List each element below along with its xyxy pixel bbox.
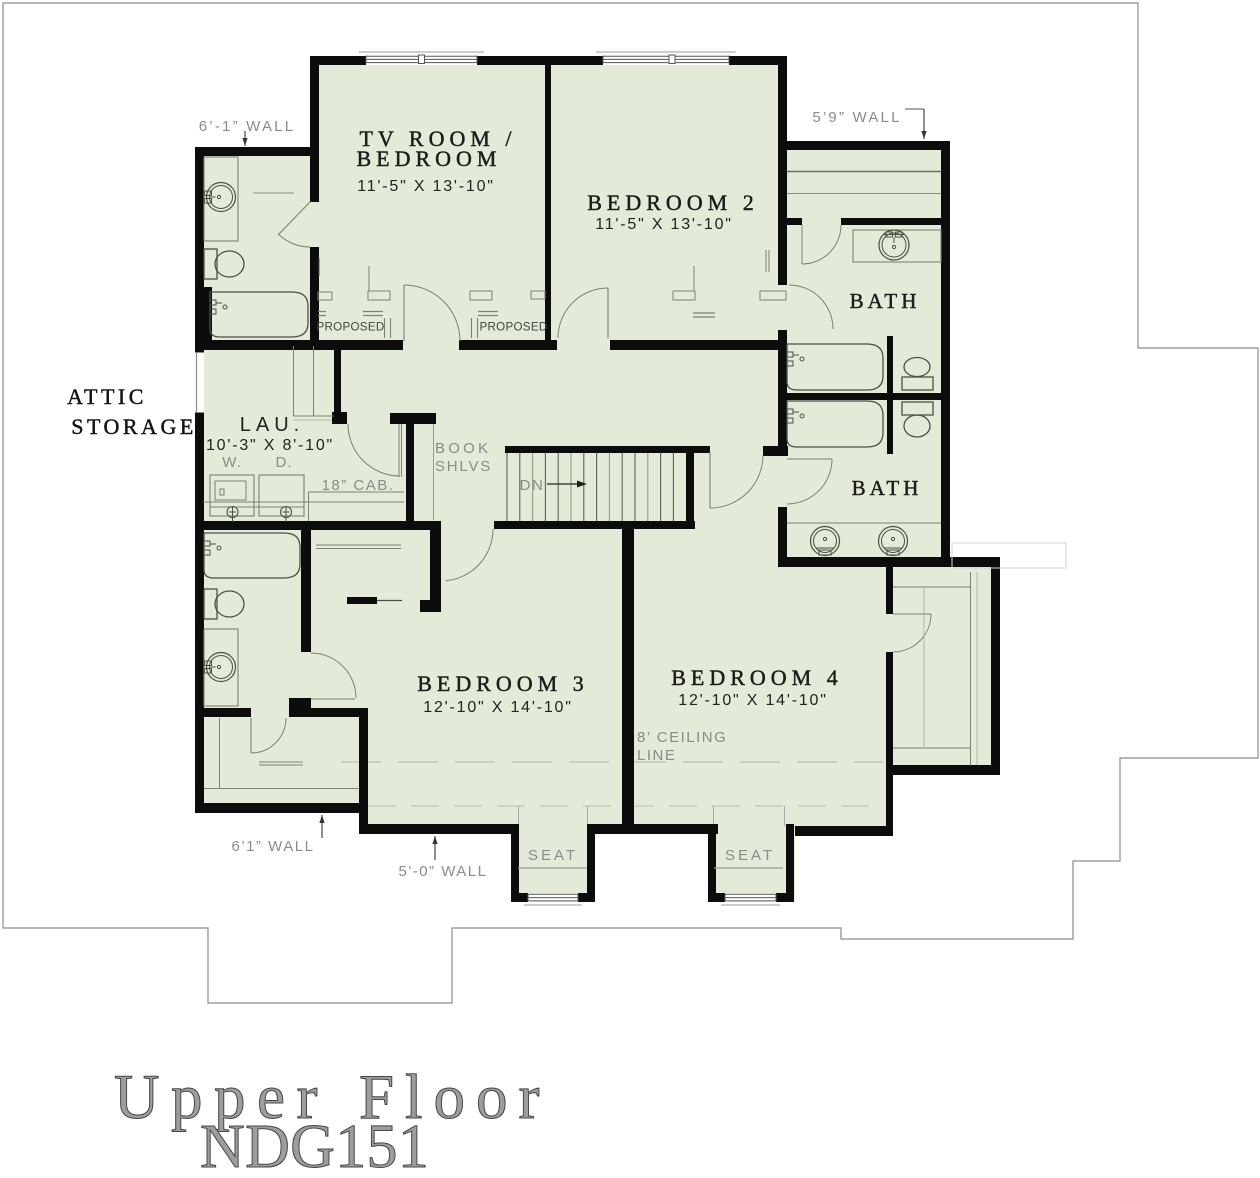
svg-text:SEAT: SEAT	[725, 847, 775, 864]
svg-text:6’-1” WALL: 6’-1” WALL	[199, 118, 295, 135]
svg-text:8’ CEILING: 8’ CEILING	[637, 729, 727, 746]
svg-text:11'-5" X 13'-10": 11'-5" X 13'-10"	[595, 216, 733, 233]
svg-text:STORAGE: STORAGE	[71, 414, 197, 439]
svg-text:5’9” WALL: 5’9” WALL	[812, 109, 901, 126]
svg-text:SHLVS: SHLVS	[435, 458, 492, 475]
svg-text:BATH: BATH	[850, 289, 921, 313]
svg-text:D.: D.	[276, 454, 293, 471]
svg-text:BEDROOM 3: BEDROOM 3	[417, 671, 589, 696]
svg-text:12'-10" X 14'-10": 12'-10" X 14'-10"	[423, 699, 572, 716]
svg-text:W.: W.	[222, 454, 242, 471]
svg-text:PROPOSED: PROPOSED	[316, 321, 384, 334]
svg-text:6’1” WALL: 6’1” WALL	[232, 838, 315, 855]
svg-text:BEDROOM 4: BEDROOM 4	[671, 665, 843, 690]
svg-text:SEAT: SEAT	[528, 847, 578, 864]
svg-text:BEDROOM 2: BEDROOM 2	[587, 190, 759, 215]
svg-text:DN: DN	[520, 477, 545, 494]
svg-text:10'-3" X 8'-10": 10'-3" X 8'-10"	[206, 437, 334, 454]
svg-text:NDG151: NDG151	[200, 1113, 429, 1173]
svg-text:LAU.: LAU.	[240, 414, 304, 436]
svg-text:18” CAB.: 18” CAB.	[322, 477, 395, 494]
svg-text:ATTIC: ATTIC	[67, 384, 147, 409]
svg-text:LINE: LINE	[637, 747, 676, 764]
svg-text:BOOK: BOOK	[435, 440, 491, 457]
svg-text:BEDROOM: BEDROOM	[356, 146, 501, 171]
svg-text:BATH: BATH	[852, 476, 923, 500]
svg-text:12'-10" X 14'-10": 12'-10" X 14'-10"	[678, 692, 827, 709]
svg-text:PROPOSED: PROPOSED	[479, 321, 547, 334]
svg-text:5'-0” WALL: 5'-0” WALL	[399, 863, 488, 880]
svg-text:11'-5" X 13'-10": 11'-5" X 13'-10"	[357, 178, 495, 195]
